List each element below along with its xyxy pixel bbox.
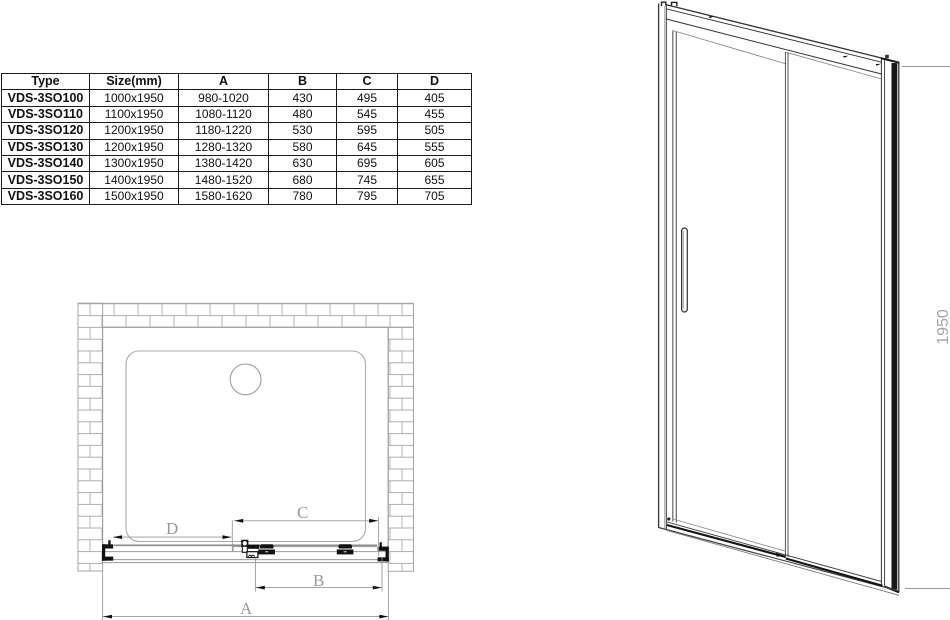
svg-text:B: B [313,571,324,590]
svg-text:C: C [297,503,308,522]
svg-text:A: A [240,599,253,618]
svg-text:D: D [166,519,178,538]
svg-text:1950: 1950 [935,309,950,345]
